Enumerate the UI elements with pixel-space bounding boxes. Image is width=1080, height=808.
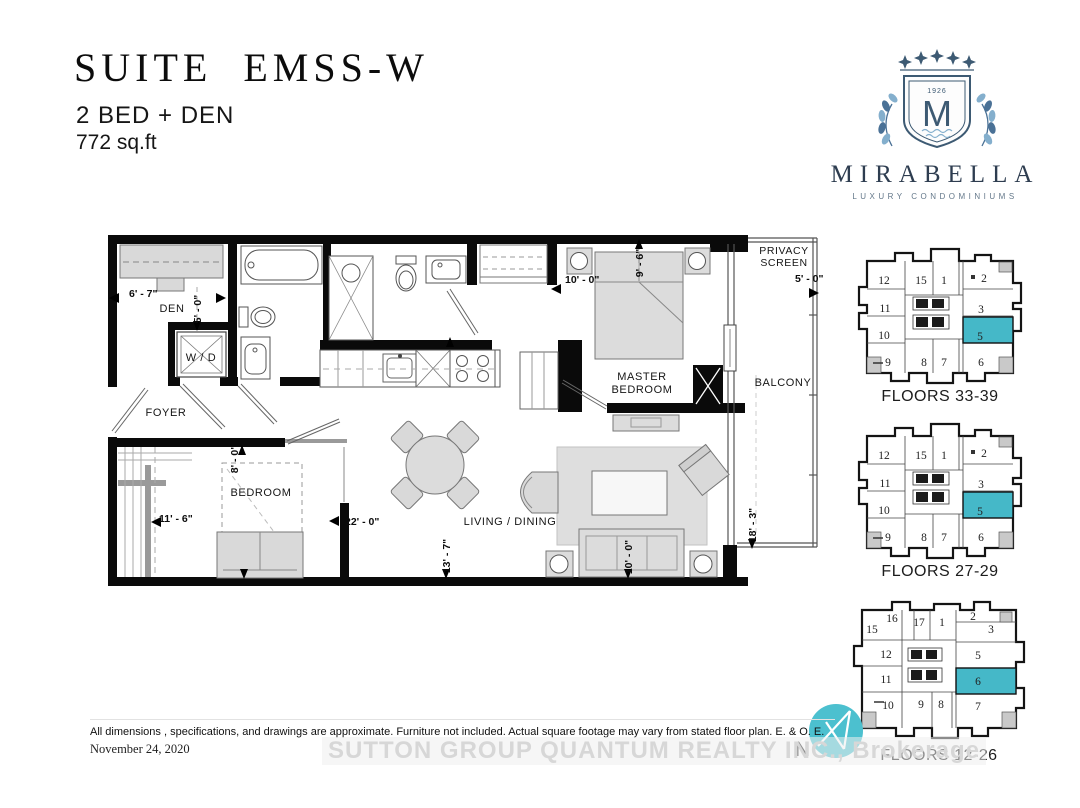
den-desk [120,245,223,291]
label-bedroom: BEDROOM [230,487,291,499]
unit-number: 6 [978,532,984,544]
unit-number: 11 [879,303,890,315]
unit-number-highlighted: 5 [977,331,983,343]
dim-media-height: 13' - 7" [441,539,453,573]
unit-number: 12 [878,275,890,287]
label-wd: W / D [186,352,217,364]
highlighted-unit [963,317,1013,343]
page-title: SUITE EMSS-W [74,44,429,91]
unit-number: 9 [885,357,891,369]
dim-master-height: 9' - 6" [634,249,646,278]
unit-number: 7 [941,357,947,369]
label-living-dining: LIVING / DINING [464,516,557,528]
unit-number: 7 [975,701,981,713]
keyplan-floors-27-29: 12 15 1 2 11 3 10 5 9 8 7 6 FLOORS 27-29 [855,418,1030,583]
plan-date: November 24, 2020 [90,742,190,757]
unit-number: 12 [878,450,890,462]
unit-number: 2 [981,273,987,285]
unit-number: 9 [885,532,891,544]
unit-number: 15 [866,624,878,636]
linen-closet [693,365,723,407]
keyplan-title: FLOORS 27-29 [881,563,998,580]
label-foyer: FOYER [146,407,187,419]
unit-number: 1 [939,617,945,629]
logo-tagline: LUXURY CONDOMINIUMS [830,192,1040,201]
dim-den-height: 5' - 0" [192,295,204,324]
keyplan-floors-33-39: 12 15 1 2 11 3 10 5 9 8 7 6 FLOORS 33-39 [855,243,1030,408]
bedroom-bed [217,463,303,578]
dim-bedroom-width: 11' - 6" [159,513,193,525]
unit-number: 11 [879,478,890,490]
dim-bedroom-height: 8' - 0" [229,445,241,474]
unit-number: 10 [878,505,890,517]
highlighted-unit [963,492,1013,518]
dim-den-width: 6' - 7" [129,288,158,300]
unit-number: 1 [941,450,947,462]
highlighted-unit [956,668,1016,694]
logo-brand: MIRABELLA [830,161,1040,189]
laurel-right-icon [975,92,997,146]
label-privacy-2: SCREEN [760,257,807,269]
dim-balcony-width: 5' - 0" [795,273,824,285]
unit-number: 2 [981,448,987,460]
unit-number: 10 [882,700,894,712]
floor-plan: DEN W / D FOYER BEDROOM MASTER BEDROOM L… [95,225,825,590]
label-den: DEN [159,303,184,315]
unit-number: 3 [978,479,984,491]
label-balcony: BALCONY [755,377,812,389]
suite-config: 2 BED + DEN [76,102,234,130]
unit-number-highlighted: 5 [977,506,983,518]
unit-number: 8 [938,699,944,711]
unit-number: 1 [941,275,947,287]
unit-number: 16 [886,613,898,625]
label-master-1: MASTER [617,371,666,383]
unit-number: 8 [921,532,927,544]
unit-number: 12 [880,649,892,661]
laurel-left-icon [877,92,899,146]
dim-sofa-width: 10' - 0" [623,540,635,574]
footer-divider [90,719,835,720]
keyplan-title: FLOORS 33-39 [881,388,998,405]
unit-number: 15 [915,275,927,287]
dim-master-width: 10' - 0" [565,274,599,286]
mirabella-logo: 1926 M MIRABELLA LUXURY CONDOMINIUMS [830,46,1040,201]
unit-number: 17 [913,617,925,629]
label-privacy-1: PRIVACY [759,245,809,257]
logo-monogram: M [922,93,952,134]
crest-icon: 1926 M [830,46,1040,154]
unit-number: 7 [941,532,947,544]
unit-number: 6 [978,357,984,369]
unit-number: 9 [918,699,924,711]
dim-living-width: 22' - 0" [345,516,379,528]
brokerage-watermark: SUTTON GROUP QUANTUM REALTY INC., Broker… [322,737,986,765]
kitchen [320,350,500,387]
unit-number: 2 [970,611,976,623]
unit-number: 3 [988,624,994,636]
unit-number: 11 [880,674,891,686]
suite-area: 772 sq.ft [76,131,157,155]
unit-number-highlighted: 6 [975,676,981,688]
unit-number: 3 [978,304,984,316]
label-master-2: BEDROOM [611,384,672,396]
unit-number: 10 [878,330,890,342]
unit-number: 5 [975,650,981,662]
unit-number: 15 [915,450,927,462]
dim-balcony-height: 18' - 3" [747,508,759,542]
unit-number: 8 [921,357,927,369]
